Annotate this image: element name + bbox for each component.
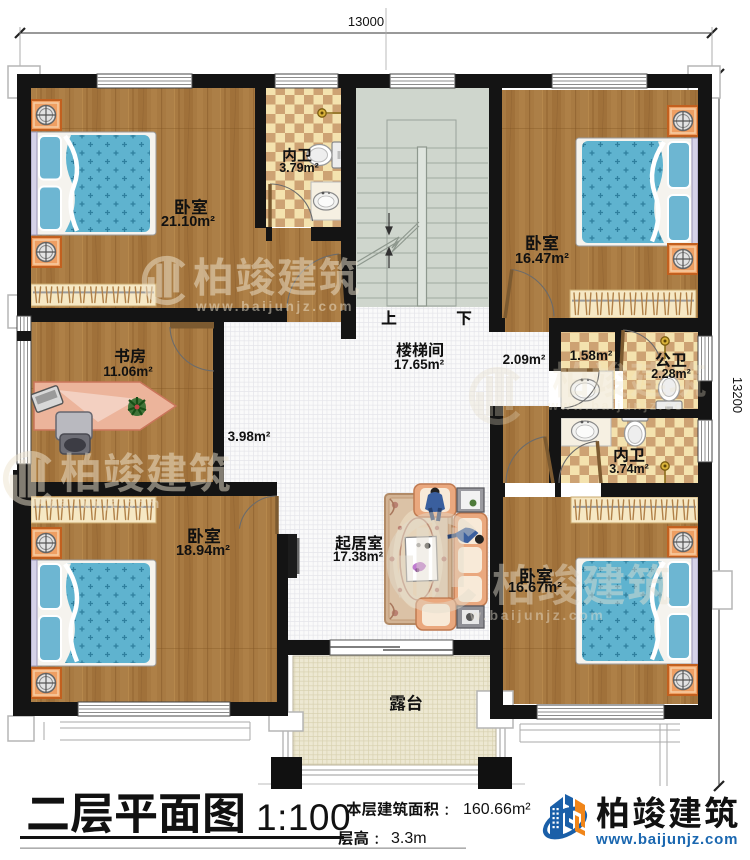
svg-text:3.98m²: 3.98m² xyxy=(228,429,271,444)
svg-text:2.28m²: 2.28m² xyxy=(651,367,691,381)
svg-text:w.baijunjz.com: w.baijunjz.com xyxy=(469,607,605,623)
svg-text:17.38m²: 17.38m² xyxy=(333,549,384,564)
svg-text:3.74m²: 3.74m² xyxy=(609,462,649,476)
svg-text:17.65m²: 17.65m² xyxy=(394,357,445,372)
svg-text:1:100: 1:100 xyxy=(256,797,351,838)
svg-text:2.09m²: 2.09m² xyxy=(503,352,546,367)
svg-text:www.baijunjz.com: www.baijunjz.com xyxy=(595,831,738,848)
svg-text:3.3m: 3.3m xyxy=(391,830,427,847)
svg-text:3.79m²: 3.79m² xyxy=(279,161,319,175)
svg-text:16.47m²: 16.47m² xyxy=(515,251,569,267)
svg-text:11.06m²: 11.06m² xyxy=(103,364,153,379)
svg-text:18.94m²: 18.94m² xyxy=(176,543,230,559)
svg-text:w.baijunjz.com: w.baijunjz.com xyxy=(29,496,162,511)
svg-text:160.66m²: 160.66m² xyxy=(463,801,531,818)
svg-text:21.10m²: 21.10m² xyxy=(161,214,215,230)
svg-text:www.baijunjz.co: www.baijunjz.co xyxy=(547,398,685,413)
svg-text:13200: 13200 xyxy=(730,377,745,413)
svg-text:16.67m²: 16.67m² xyxy=(508,580,562,596)
svg-text:1.58m²: 1.58m² xyxy=(570,348,613,363)
svg-text:13000: 13000 xyxy=(348,14,384,29)
svg-text:www.baijunjz.com: www.baijunjz.com xyxy=(195,299,354,314)
